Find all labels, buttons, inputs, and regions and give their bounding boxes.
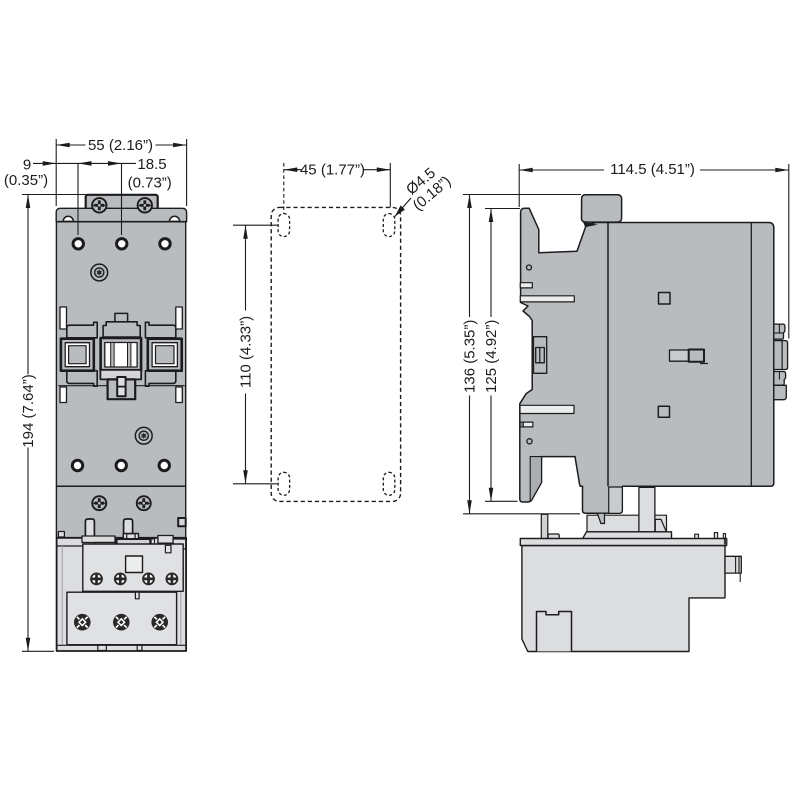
svg-text:125 (4.92”): 125 (4.92”) (483, 320, 500, 393)
svg-text:136 (5.35”): 136 (5.35”) (462, 320, 479, 393)
svg-text:55 (2.16”): 55 (2.16”) (88, 137, 153, 154)
svg-text:114.5 (4.51”): 114.5 (4.51”) (610, 161, 695, 178)
svg-text:45 (1.77”): 45 (1.77”) (300, 161, 365, 178)
svg-text:(0.73”): (0.73”) (128, 175, 172, 192)
svg-text:110 (4.33”): 110 (4.33”) (238, 316, 255, 388)
svg-text:(0.35”): (0.35”) (4, 172, 48, 189)
svg-text:9: 9 (23, 156, 31, 173)
svg-text:18.5: 18.5 (137, 156, 166, 173)
svg-text:194 (7.64”): 194 (7.64”) (20, 374, 37, 447)
